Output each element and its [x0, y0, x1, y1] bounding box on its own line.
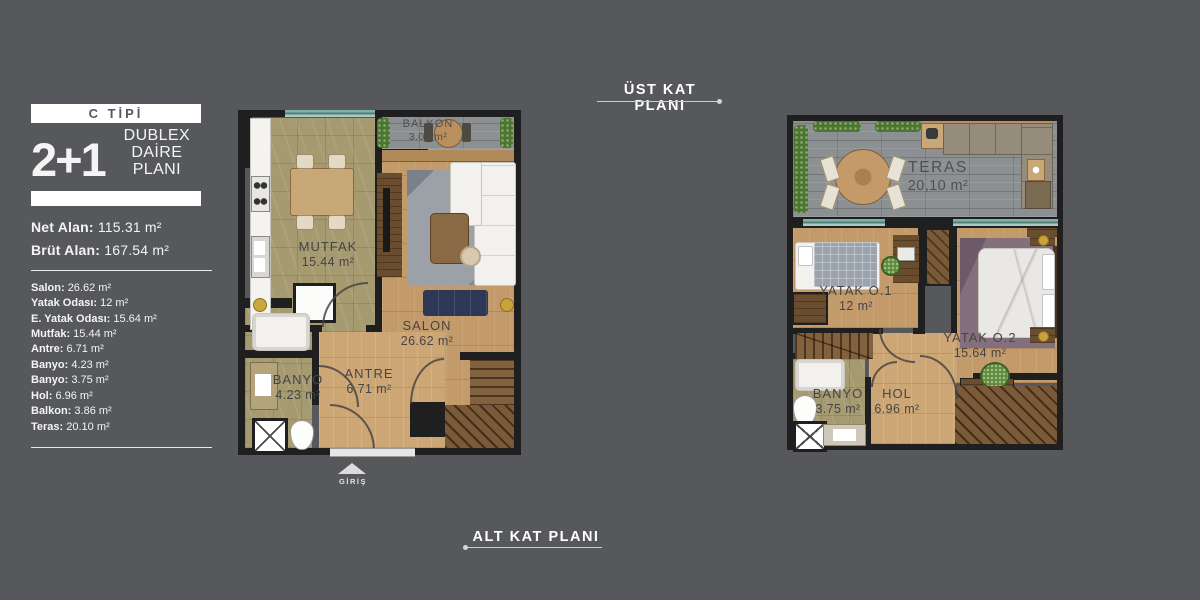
wall — [415, 448, 521, 455]
bedroom1-window — [803, 219, 885, 226]
lower-title-underline — [464, 547, 602, 548]
room-label: Banyo: — [31, 359, 68, 371]
terrace-hedge — [813, 121, 861, 132]
room-value: 15.44 m² — [73, 328, 116, 340]
list-item: Yatak Odası: 12 m² — [31, 296, 212, 311]
grill — [926, 128, 938, 139]
separator-line — [31, 447, 212, 448]
entry-threshold — [330, 448, 415, 457]
stairs — [445, 405, 514, 448]
room-value: 26.62 m² — [68, 282, 111, 294]
room-name: YATAK O.1 — [813, 283, 899, 299]
type-label: C TİPİ — [31, 104, 201, 123]
terrace-label: TERAS 20,10 m² — [895, 159, 981, 196]
plant-pot — [881, 256, 901, 276]
wall — [460, 352, 514, 360]
bathroom-vanity — [823, 424, 866, 446]
pillow — [1042, 294, 1055, 330]
lower-floor-plan: BALKON 3.02 m² MUTFAK 15.44 m² SALON 26.… — [238, 110, 521, 455]
lower-floor-title: ALT KAT PLANI — [466, 529, 606, 545]
floorplan-brochure: C TİPİ 2+1 DUBLEX DAİRE PLANI Net Alan: … — [0, 0, 1200, 600]
fruit-bowl — [253, 298, 267, 312]
wall — [1057, 115, 1063, 450]
room-name: BALKON — [396, 118, 460, 131]
room-value: 3.86 m² — [74, 405, 111, 417]
room-value: 15.64 m² — [113, 313, 156, 325]
room-name: TERAS — [895, 159, 981, 178]
room-area: 3.02 m² — [396, 131, 460, 144]
room-label: Salon: — [31, 282, 65, 294]
dining-chair — [328, 215, 346, 230]
stove — [251, 176, 270, 212]
bathtub — [252, 313, 310, 351]
list-item: Salon: 26.62 m² — [31, 281, 212, 296]
window-sill-cabinet — [382, 150, 514, 162]
bedside-lamp — [1038, 331, 1049, 342]
room-name: HOL — [869, 386, 925, 402]
room-value: 3.75 m² — [71, 374, 108, 386]
room-label: Mutfak: — [31, 328, 70, 340]
wall — [951, 228, 957, 333]
bathroom-label: BANYO 4.23 m² — [262, 372, 334, 403]
kitchen-window — [285, 110, 375, 117]
room-area: 15.44 m² — [286, 255, 370, 270]
separator-line — [31, 270, 212, 271]
divider-bar — [31, 191, 201, 206]
room-label: E. Yatak Odası: — [31, 313, 110, 325]
terrace-table — [835, 149, 891, 205]
info-panel: C TİPİ 2+1 DUBLEX DAİRE PLANI Net Alan: … — [31, 104, 212, 458]
gross-area-line: Brüt Alan: 167.54 m² — [31, 242, 212, 258]
room-area: 3.75 m² — [802, 402, 874, 417]
room-value: 6.71 m² — [66, 343, 103, 355]
room-name: ANTRE — [329, 366, 409, 382]
net-area-value: 115.31 m² — [98, 219, 162, 235]
subtitle-line2: DAİRE PLANI — [113, 145, 201, 179]
room-name: SALON — [387, 318, 467, 334]
bedroom2-window — [953, 219, 1058, 226]
dining-chair — [296, 154, 314, 169]
list-item: Teras: 20.10 m² — [31, 420, 212, 435]
net-area-line: Net Alan: 115.31 m² — [31, 219, 212, 235]
floor-lamp — [460, 246, 481, 267]
room-area: 20,10 m² — [895, 178, 981, 196]
antre-label: ANTRE 6.71 m² — [329, 366, 409, 397]
gross-area-label: Brüt Alan: — [31, 242, 100, 258]
wall — [787, 115, 793, 450]
upper-title-underline — [597, 101, 721, 102]
room-name: MUTFAK — [286, 239, 370, 255]
kitchen-label: MUTFAK 15.44 m² — [286, 239, 370, 270]
blanket — [814, 243, 877, 287]
bedside-lamp — [1038, 235, 1049, 246]
wall — [918, 228, 925, 333]
kitchen-sink — [251, 236, 270, 278]
laptop — [897, 247, 915, 261]
room-area: 15.64 m² — [937, 346, 1023, 361]
gross-area-value: 167.54 m² — [104, 242, 169, 258]
terrace-plant — [794, 125, 808, 213]
bathroom2-label: BANYO 3.75 m² — [802, 386, 874, 417]
bedroom2-label: YATAK O.2 15.64 m² — [937, 330, 1023, 361]
balcony-plant — [377, 118, 390, 148]
room-area: 6.96 m² — [869, 402, 925, 417]
room-value: 20.10 m² — [66, 421, 109, 433]
tv-screen — [383, 188, 390, 252]
entrance-label: GİRİŞ — [330, 477, 376, 486]
list-item: E. Yatak Odası: 15.64 m² — [31, 312, 212, 327]
room-label: Antre: — [31, 343, 63, 355]
net-area-label: Net Alan: — [31, 219, 94, 235]
room-area: 26.62 m² — [387, 334, 467, 349]
room-area: 4.23 m² — [262, 388, 334, 403]
wardrobe — [925, 228, 951, 286]
room-label: Balkon: — [31, 405, 71, 417]
wall — [238, 350, 312, 358]
room-area-list: Salon: 26.62 m² Yatak Odası: 12 m² E. Ya… — [31, 281, 212, 435]
room-name: BANYO — [262, 372, 334, 388]
stair-void — [410, 402, 445, 437]
stair-landing — [470, 360, 514, 406]
balcony-plant — [500, 118, 513, 148]
stairs — [955, 386, 1057, 444]
subtitle-line1: DUBLEX — [113, 128, 201, 145]
room-label: Banyo: — [31, 374, 68, 386]
side-lamp — [500, 298, 514, 312]
pillow — [1042, 254, 1055, 290]
room-name: BANYO — [802, 386, 874, 402]
entrance-arrow-icon — [338, 463, 366, 474]
list-item: Antre: 6.71 m² — [31, 342, 212, 357]
room-area: 12 m² — [813, 299, 899, 314]
lounge-chair — [1025, 181, 1051, 209]
room-label: Hol: — [31, 390, 52, 402]
terrace-hedge — [875, 121, 921, 132]
list-item: Hol: 6.96 m² — [31, 389, 212, 404]
salon-label: SALON 26.62 m² — [387, 318, 467, 349]
room-label: Teras: — [31, 421, 63, 433]
balcony-chair — [462, 123, 471, 142]
room-value: 12 m² — [100, 297, 128, 309]
list-item: Banyo: 3.75 m² — [31, 373, 212, 388]
dining-chair — [296, 215, 314, 230]
balcony-label: BALKON 3.02 m² — [396, 118, 460, 144]
unit-subtitle: DUBLEX DAİRE PLANI — [113, 128, 201, 180]
unit-type: 2+1 — [31, 141, 105, 180]
upper-floor-title: ÜST KAT PLANI — [598, 82, 722, 114]
hall-label: HOL 6.96 m² — [869, 386, 925, 417]
terrace-side-table — [1027, 159, 1045, 181]
list-item: Balkon: 3.86 m² — [31, 404, 212, 419]
room-area: 6.71 m² — [329, 382, 409, 397]
room-value: 4.23 m² — [71, 359, 108, 371]
room-name: YATAK O.2 — [937, 330, 1023, 346]
list-item: Banyo: 4.23 m² — [31, 358, 212, 373]
stairs-upper-flight — [795, 333, 873, 359]
ottoman-bench — [423, 290, 488, 316]
pillow — [798, 246, 813, 266]
list-item: Mutfak: 15.44 m² — [31, 327, 212, 342]
shower-shaft — [252, 418, 288, 454]
dining-table — [290, 168, 354, 216]
room-label: Yatak Odası: — [31, 297, 97, 309]
title-row: 2+1 DUBLEX DAİRE PLANI — [31, 128, 201, 180]
dining-chair — [328, 154, 346, 169]
bedroom1-label: YATAK O.1 12 m² — [813, 283, 899, 314]
upper-floor-plan: TERAS 20,10 m² YATAK O.1 12 m² YATAK O.2… — [787, 115, 1063, 450]
shower-shaft — [793, 421, 827, 452]
room-value: 6.96 m² — [55, 390, 92, 402]
